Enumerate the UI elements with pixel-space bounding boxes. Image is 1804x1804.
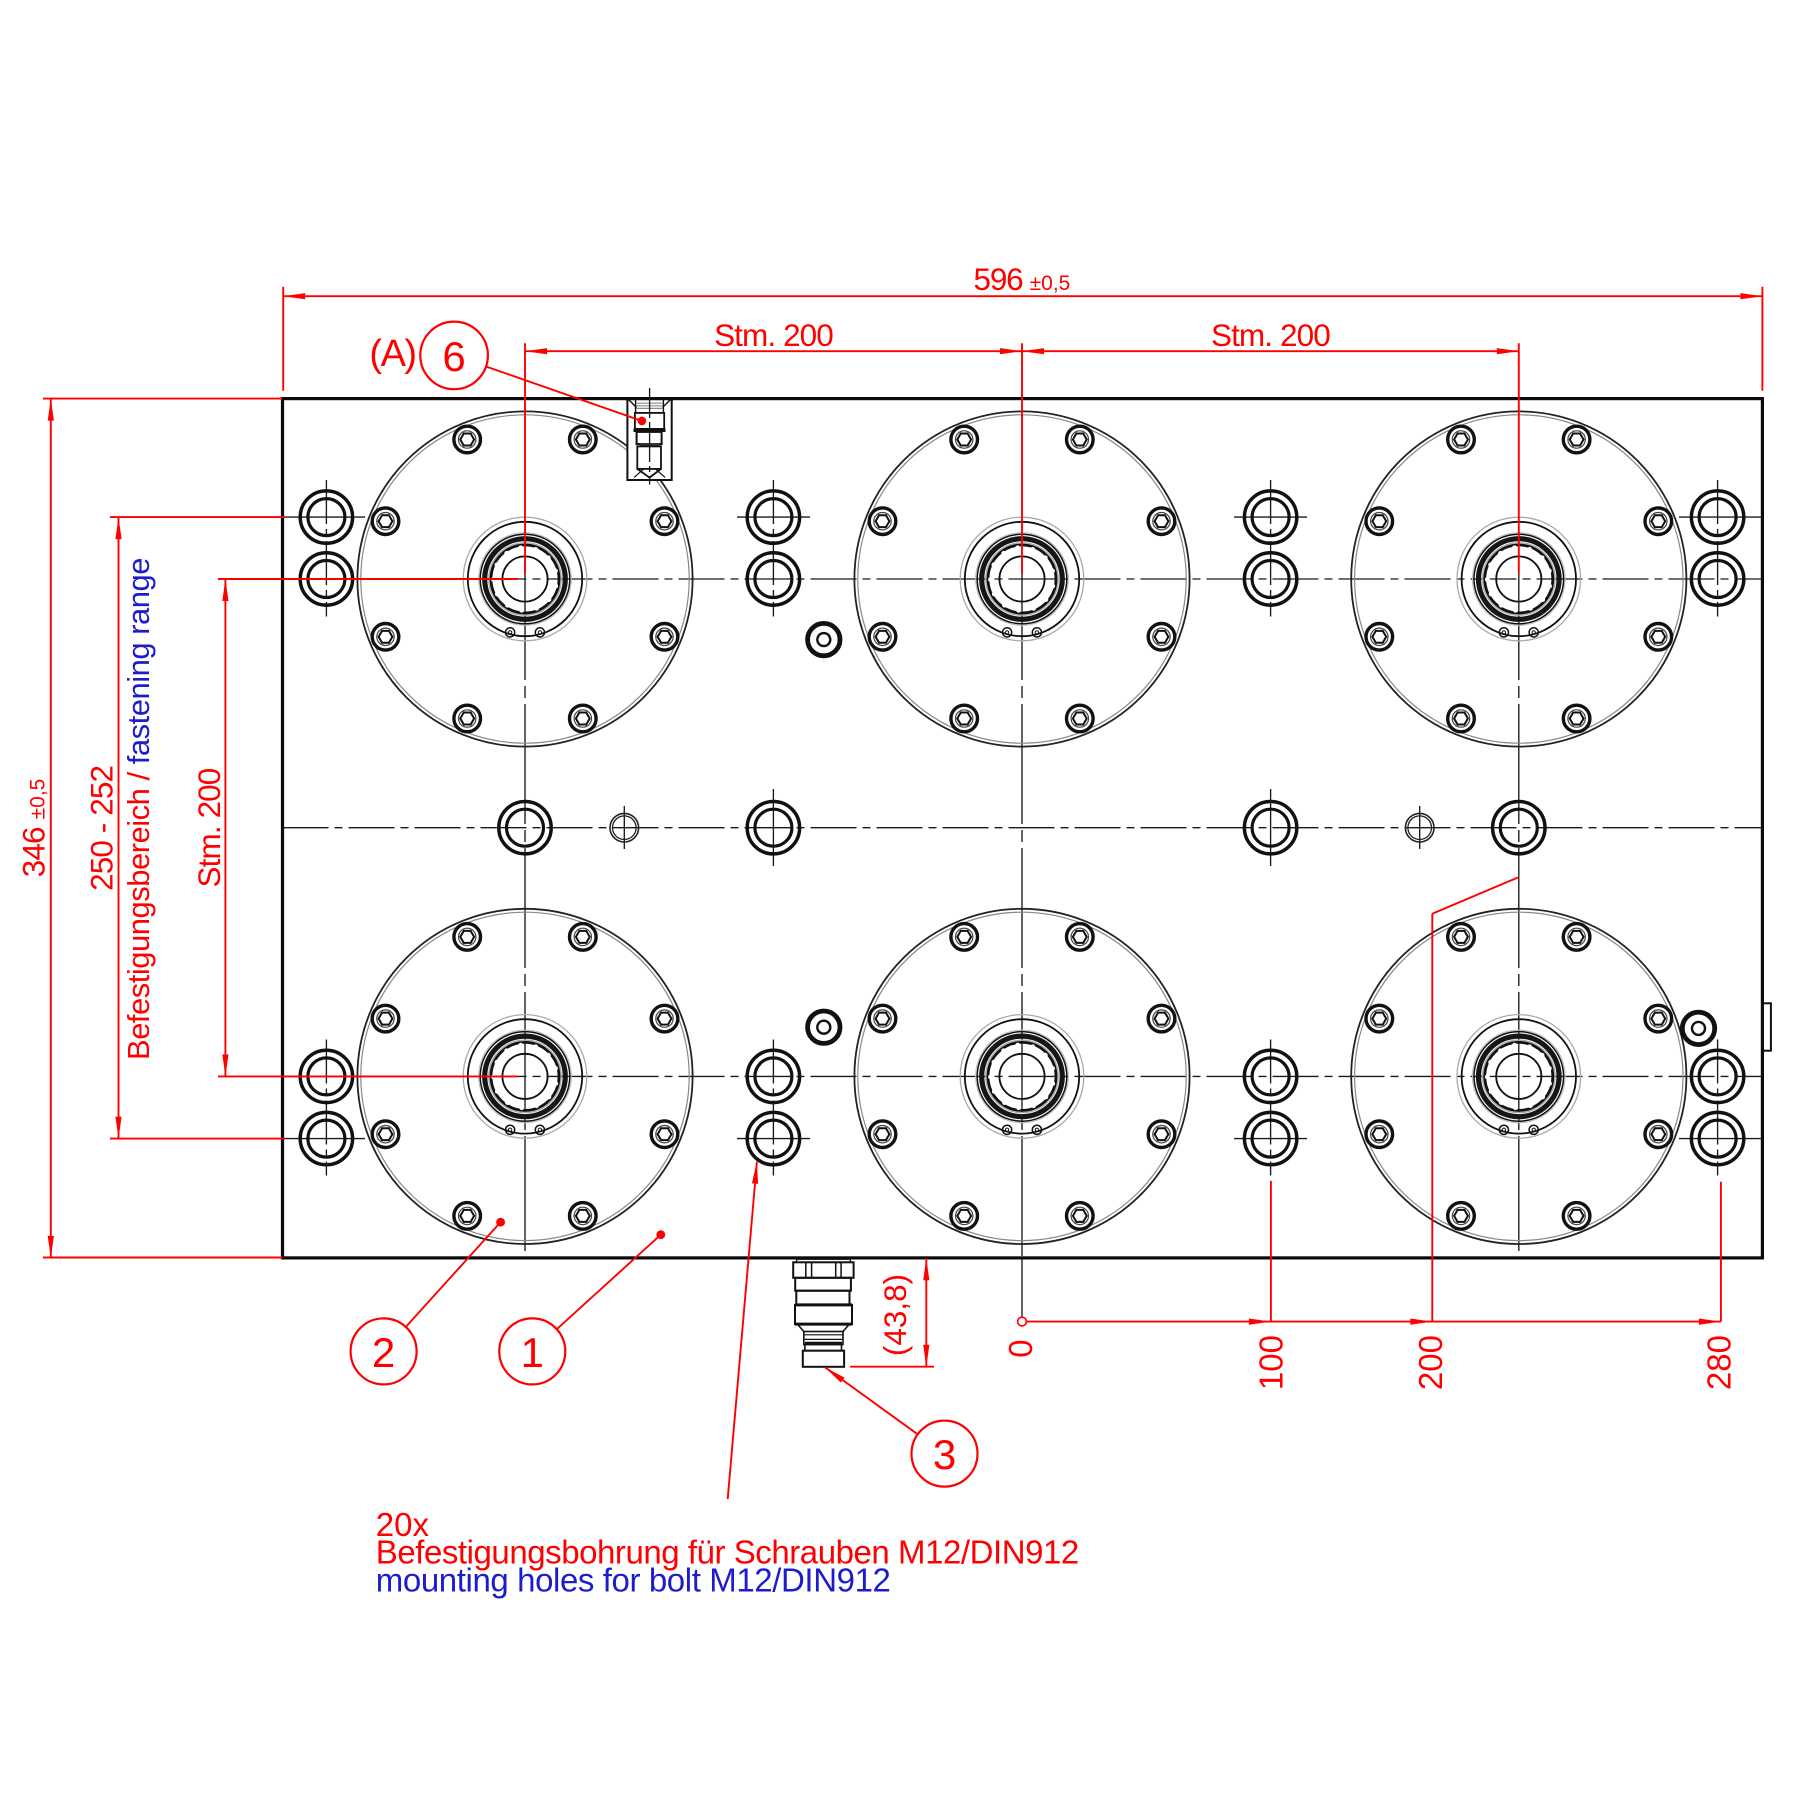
svg-text:596: 596 [974, 261, 1024, 297]
svg-text:±0,5: ±0,5 [27, 779, 50, 820]
svg-text:±0,5: ±0,5 [1030, 272, 1071, 295]
svg-text:280: 280 [1701, 1335, 1738, 1390]
svg-text:2: 2 [372, 1329, 395, 1376]
svg-text:0: 0 [1002, 1339, 1039, 1357]
svg-text:mounting holes for bolt M12/DI: mounting holes for bolt M12/DIN912 [376, 1561, 891, 1598]
svg-text:Befestigungsbereich / fastenin: Befestigungsbereich / fastening range [121, 558, 156, 1060]
svg-text:(43,8): (43,8) [877, 1274, 913, 1356]
svg-text:Stm. 200: Stm. 200 [714, 317, 833, 353]
svg-text:346: 346 [16, 827, 52, 877]
svg-text:6: 6 [442, 333, 465, 380]
svg-text:3: 3 [933, 1431, 956, 1478]
svg-text:Stm. 200: Stm. 200 [1211, 317, 1330, 353]
svg-text:250 - 252: 250 - 252 [84, 766, 120, 891]
svg-text:1: 1 [521, 1329, 544, 1376]
svg-text:100: 100 [1252, 1335, 1289, 1390]
svg-text:(A): (A) [369, 333, 415, 375]
svg-text:Stm. 200: Stm. 200 [191, 768, 227, 887]
svg-text:200: 200 [1412, 1335, 1449, 1390]
